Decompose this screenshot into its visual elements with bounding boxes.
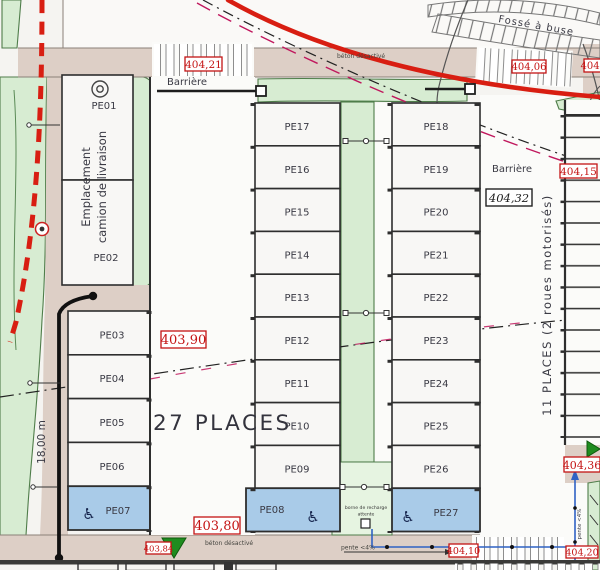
stall-label: PE03 — [99, 330, 124, 341]
slope-note: pente <4% — [341, 545, 375, 552]
wall-endpoint — [89, 292, 97, 300]
stall-label: PE06 — [99, 462, 124, 473]
stall-label: PE11 — [284, 379, 309, 390]
svg-text:404,32: 404,32 — [488, 191, 529, 205]
stall-label: PE23 — [423, 336, 448, 347]
stall-label: PE13 — [284, 293, 309, 304]
level-label: 404,36 — [563, 457, 600, 472]
slope-note: pente <4% — [577, 509, 583, 540]
stall-label: PE25 — [423, 422, 448, 433]
svg-text:403,84: 403,84 — [144, 545, 174, 555]
stall-corner-ticks — [251, 103, 256, 533]
surface-note: béton désactivé — [337, 53, 385, 60]
borne-note: attente — [358, 512, 375, 518]
svg-text:404,41: 404,41 — [581, 61, 600, 72]
level-label-existing: 404,32 — [486, 189, 532, 206]
stall-label: PE14 — [284, 250, 309, 261]
level-label: 404,21 — [185, 57, 222, 71]
conduit-dot — [573, 540, 577, 544]
stall-label: PE07 — [105, 506, 130, 517]
stall-label: PE21 — [423, 250, 448, 261]
level-label: 403,84 — [144, 542, 174, 555]
stall-label: PE18 — [423, 122, 448, 133]
stall-label: PE20 — [423, 208, 448, 219]
svg-text:404,20: 404,20 — [565, 548, 598, 559]
barrier-label: Barrière — [167, 76, 207, 88]
level-label: 403,80 — [194, 517, 240, 534]
stall-corner-ticks — [388, 103, 393, 533]
level-label: 404,06 — [512, 60, 547, 73]
borne-symbol — [361, 519, 370, 528]
places-count-label: 27 PLACES — [153, 411, 292, 436]
wheelchair-icon: ♿ — [306, 508, 319, 526]
drive-aisle-left — [150, 77, 255, 535]
cutoff-hatch-bottom-right — [455, 564, 600, 570]
level-label: 404,15 — [560, 164, 597, 178]
drain-mark — [224, 562, 233, 570]
svg-text:403,90: 403,90 — [161, 333, 207, 348]
survey-marker-icon — [40, 227, 45, 232]
stall-label: PE12 — [284, 336, 309, 347]
svg-text:404,36: 404,36 — [563, 459, 600, 472]
stall-label: PE09 — [284, 464, 309, 475]
stall-label: PE17 — [284, 122, 309, 133]
stall-label: PE02 — [93, 253, 118, 264]
surface-note: béton désactivé — [205, 540, 253, 547]
stall-label: PE16 — [284, 165, 309, 176]
wheelchair-icon: ♿ — [401, 508, 414, 526]
moto-places-label: 11 PLACES (2 roues motorisés) — [540, 194, 554, 416]
road-entry-left — [62, 285, 150, 311]
stall-label: PE05 — [99, 418, 124, 429]
svg-text:403,80: 403,80 — [194, 519, 240, 534]
barrier-label: Barrière — [492, 163, 532, 175]
stall-label: PE15 — [284, 208, 309, 219]
delivery-zone-label: camion de livraison — [95, 131, 109, 243]
parking-site-plan: Fossé à buse — [0, 0, 600, 570]
green-area-top-left — [2, 0, 21, 48]
site-plan-canvas: Fossé à buse — [0, 0, 600, 570]
svg-text:404,15: 404,15 — [560, 166, 597, 178]
stall-label: PE04 — [99, 374, 124, 385]
delivery-zone-label: Emplacement — [79, 147, 93, 227]
svg-text:404,10: 404,10 — [447, 546, 480, 557]
wheelchair-icon: ♿ — [82, 505, 95, 523]
stall-label: PE27 — [433, 508, 458, 519]
stall-label: PE19 — [423, 165, 448, 176]
stall-label: PE26 — [423, 464, 448, 475]
dimension-label: 18,00 m — [36, 420, 48, 464]
level-label: 404,41 — [581, 59, 600, 72]
stall-label: PE22 — [423, 293, 448, 304]
stall-label: PE24 — [423, 379, 448, 390]
green-strip-middle — [341, 102, 374, 462]
stall-label: PE08 — [259, 505, 284, 516]
svg-text:404,06: 404,06 — [512, 62, 547, 73]
level-label: 404,10 — [447, 544, 480, 557]
svg-text:404,21: 404,21 — [185, 59, 222, 71]
stall-corner-ticks — [475, 103, 480, 533]
borne-note: borne de recharge — [345, 505, 388, 511]
level-label: 403,90 — [161, 331, 207, 348]
stall-label: PE01 — [91, 101, 116, 112]
level-label: 404,20 — [565, 546, 598, 559]
